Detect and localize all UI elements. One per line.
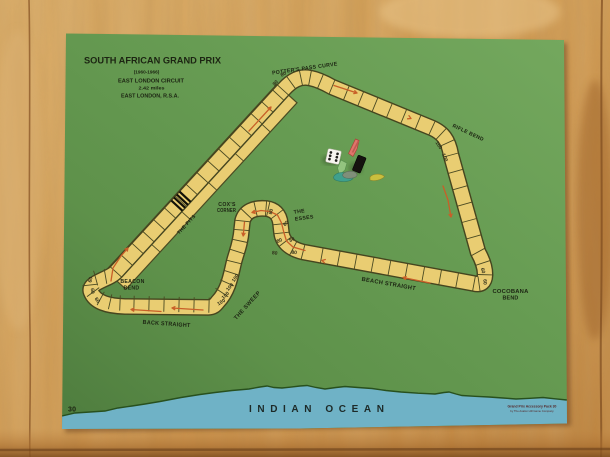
svg-text:COCOBANA: COCOBANA: [493, 289, 529, 295]
svg-text:30: 30: [68, 407, 76, 414]
svg-text:BEND: BEND: [502, 296, 518, 302]
svg-text:BEACON: BEACON: [120, 279, 144, 285]
svg-text:80: 80: [291, 250, 297, 256]
svg-text:EAST LONDON, R.S.A.: EAST LONDON, R.S.A.: [121, 94, 179, 100]
svg-text:EAST LONDON CIRCUIT: EAST LONDON CIRCUIT: [118, 79, 185, 85]
svg-text:60: 60: [89, 288, 95, 294]
svg-text:2.42 miles: 2.42 miles: [139, 86, 165, 92]
svg-text:(1960-1966): (1960-1966): [134, 70, 160, 75]
svg-text:INDIAN OCEAN: INDIAN OCEAN: [249, 404, 390, 415]
svg-text:CORNER: CORNER: [217, 208, 236, 214]
svg-text:by The Avalon Hill Game Compan: by The Avalon Hill Game Company: [510, 409, 554, 413]
svg-text:Grand Prix Accessory Pack 30: Grand Prix Accessory Pack 30: [508, 405, 557, 409]
svg-text:60: 60: [481, 279, 487, 285]
svg-text:SOUTH AFRICAN GRAND PRIX: SOUTH AFRICAN GRAND PRIX: [84, 55, 222, 66]
svg-text:80: 80: [271, 250, 278, 257]
svg-text:BEND: BEND: [124, 285, 140, 291]
